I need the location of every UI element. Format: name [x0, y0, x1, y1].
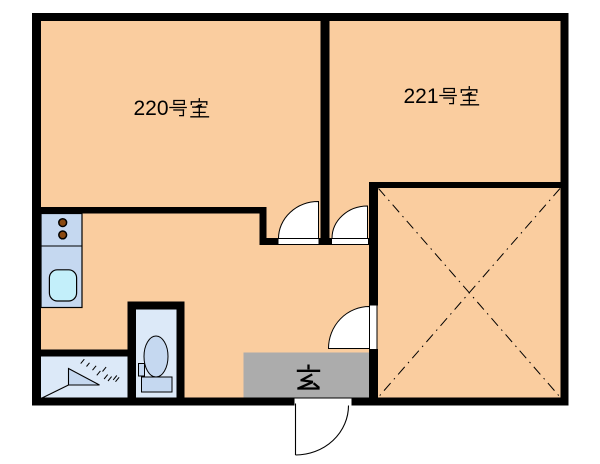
svg-text:220: 220 [134, 97, 169, 120]
svg-text:221: 221 [404, 85, 439, 108]
